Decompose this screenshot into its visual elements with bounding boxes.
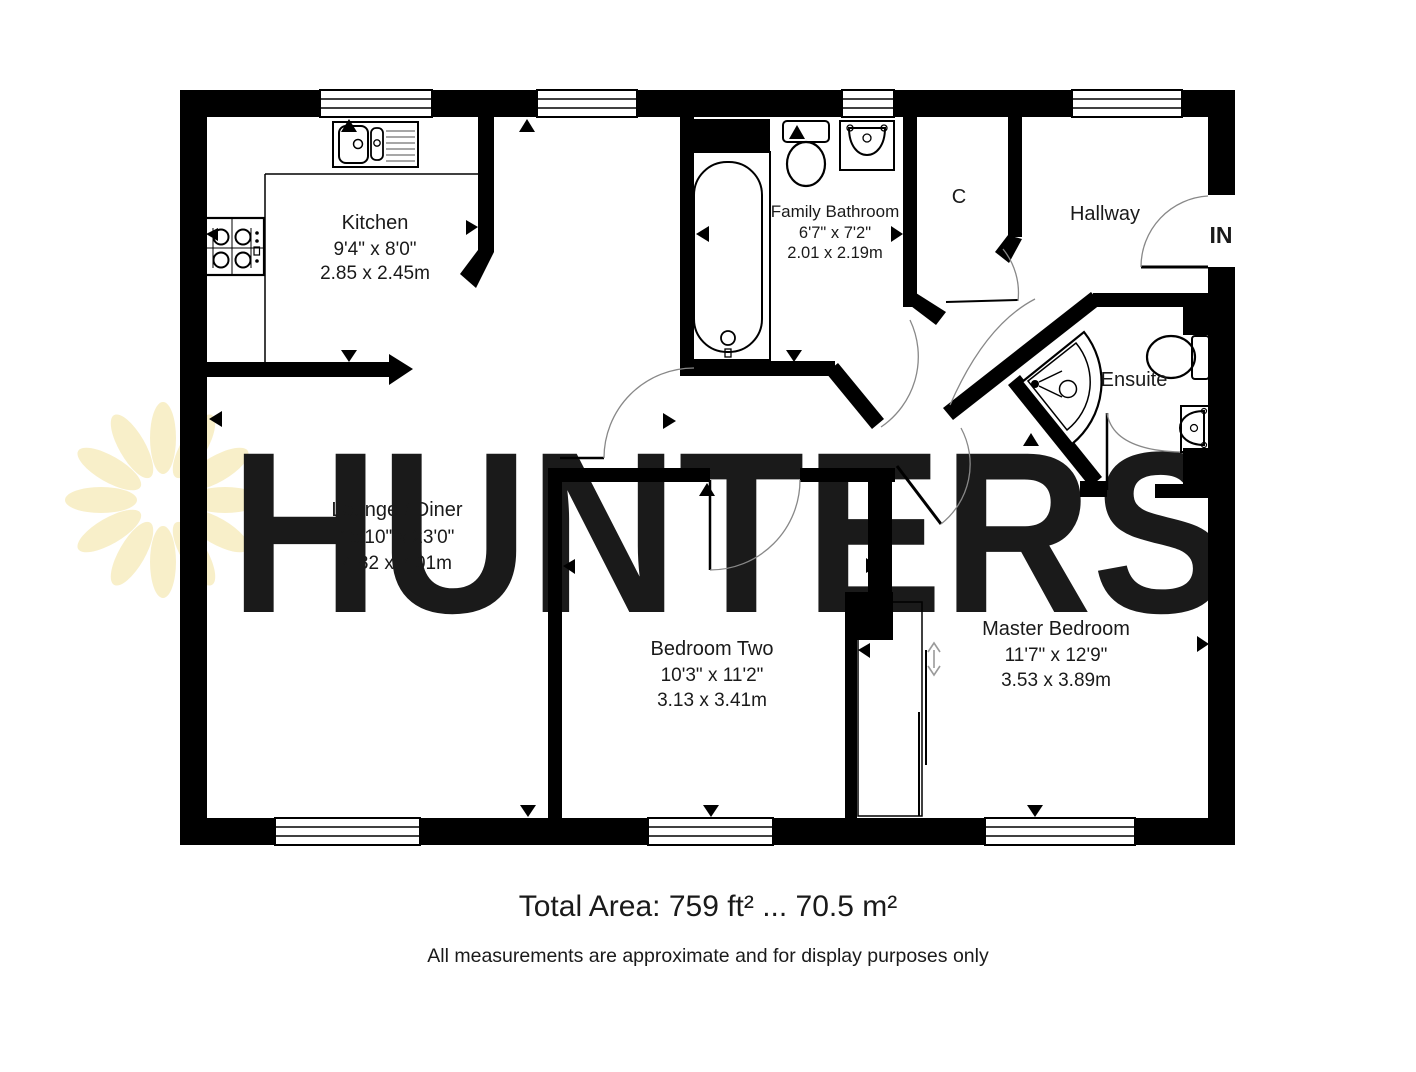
wall-kitchen-right [478, 117, 494, 252]
bathtub-icon [686, 152, 770, 360]
wall-ensuite-diagonal-cap [1080, 481, 1107, 497]
wall-right-upper [1208, 90, 1235, 195]
window-icon [275, 818, 420, 845]
measurement-arrow-icon [786, 350, 802, 362]
window-icon [842, 90, 894, 117]
window-icon [648, 818, 773, 845]
wall-kitchen-lounge [203, 362, 389, 377]
wall-bathroom-right [903, 117, 917, 307]
wall-right-inner-block-lower [1183, 448, 1208, 498]
wall-bath-recess [686, 119, 770, 153]
wall-kitchen-right-end [460, 250, 494, 288]
wall-kitchen-lounge-tip [389, 354, 413, 385]
cupboard-label: C [952, 186, 966, 208]
entrance-door-icon [1141, 196, 1208, 267]
wall-bedroom2-top-right [800, 468, 895, 482]
total-area-text: Total Area: 759 ft² ... 70.5 m² [519, 890, 898, 923]
master-bedroom-size-metric: 3.53 x 3.89m [1001, 670, 1111, 691]
measurement-arrow-icon [696, 226, 709, 242]
bedroom-two-size-metric: 3.13 x 3.41m [657, 690, 767, 711]
window-icon [985, 818, 1135, 845]
toilet-icon [783, 121, 829, 186]
lounge-diner-size-imperial: 15'10" x 23'0" [340, 527, 455, 548]
floorplan-canvas: HUNTERS [0, 0, 1416, 1072]
kitchen-label: Kitchen [342, 212, 409, 234]
wall-cupboard-right [1008, 117, 1022, 237]
wall-bedroom2-top-left [548, 468, 710, 482]
wall-bathroom-right-end [903, 293, 946, 325]
kitchen-size-metric: 2.85 x 2.45m [320, 263, 430, 284]
measurement-arrow-icon [519, 119, 535, 132]
wall-bedroom-divider-jog [845, 592, 893, 640]
measurement-arrow-icon [789, 125, 805, 139]
lounge-diner-label: Lounge / Diner [331, 499, 463, 521]
master-bedroom-size-imperial: 11'7" x 12'9" [1005, 645, 1108, 666]
wall-bedroom-divider-lower [845, 640, 857, 818]
measurement-arrow-icon [1027, 805, 1043, 817]
disclaimer-text: All measurements are approximate and for… [427, 945, 989, 967]
measurement-arrow-icon [341, 350, 357, 362]
basin-icon [840, 121, 894, 170]
wall-hallway-bottom [1093, 293, 1208, 307]
wall-left [180, 90, 207, 845]
family-bathroom-size-imperial: 6'7" x 7'2" [799, 224, 871, 242]
entrance-label: IN [1210, 222, 1233, 248]
wall-right-lower [1208, 267, 1235, 845]
wall-bedroom-divider-upper [868, 482, 892, 594]
wall-right-inner-block-upper [1183, 305, 1208, 335]
hallway-label: Hallway [1070, 203, 1140, 225]
floorplan-page: HUNTERS [0, 0, 1416, 1072]
wall-lounge-bedroom2-divider [548, 482, 562, 818]
measurement-arrow-icon [466, 220, 478, 235]
family-bathroom-label: Family Bathroom [771, 202, 899, 221]
bedroom-two-label: Bedroom Two [650, 638, 773, 660]
measurement-arrow-icon [206, 228, 218, 241]
wall-bathroom-bottom [680, 361, 835, 376]
wall-cupboard-right-end [995, 235, 1022, 263]
master-bedroom-label: Master Bedroom [982, 618, 1130, 640]
window-icon [320, 90, 432, 117]
lounge-diner-size-metric: 4.82 x 7.01m [342, 553, 452, 574]
window-icon [537, 90, 637, 117]
measurement-arrow-icon [520, 805, 536, 817]
kitchen-size-imperial: 9'4" x 8'0" [333, 239, 416, 260]
hob-icon [205, 218, 264, 275]
bedroom-two-size-imperial: 10'3" x 11'2" [661, 665, 764, 686]
measurement-arrow-icon [891, 226, 903, 242]
measurement-arrow-icon [703, 805, 719, 817]
ensuite-label: Ensuite [1101, 369, 1168, 391]
family-bathroom-size-metric: 2.01 x 2.19m [787, 244, 882, 262]
window-icon [1072, 90, 1182, 117]
footer: Total Area: 759 ft² ... 70.5 m² All meas… [427, 890, 989, 967]
